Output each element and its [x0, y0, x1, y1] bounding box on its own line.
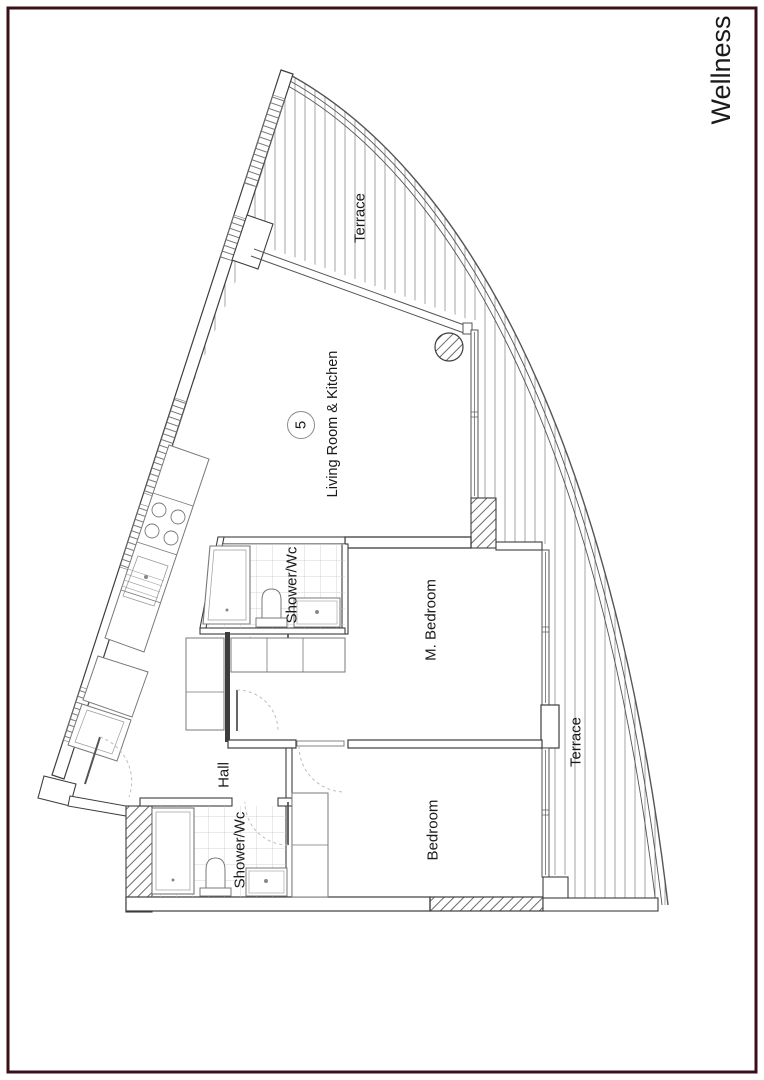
toilet-upper: [256, 618, 287, 627]
label-living-room-kitchen: Living Room & Kitchen: [325, 351, 341, 498]
label-hall: Hall: [216, 762, 233, 788]
sheet-title: Wellness: [706, 15, 736, 124]
unit-number: 5: [293, 421, 310, 429]
wardrobe-m-bedroom: [231, 638, 345, 672]
round-column: [435, 333, 463, 361]
window-bedroom: [542, 748, 549, 877]
door-leaf-bedroom: [297, 741, 344, 746]
toilet-lower: [200, 888, 231, 896]
label-shower-wc-upper: Shower/Wc: [284, 546, 301, 623]
hall-closet: [186, 638, 224, 730]
shower-wc-lower-room: [152, 802, 288, 897]
label-terrace-top: Terrace: [352, 193, 369, 243]
label-shower-wc-lower: Shower/Wc: [232, 811, 249, 888]
wall-pier-bedrooms: [541, 705, 559, 748]
wall-pier-hatched: [471, 498, 496, 548]
window-living-room: [471, 330, 478, 498]
label-bedroom: Bedroom: [425, 800, 442, 861]
label-terrace-right: Terrace: [568, 717, 585, 767]
label-m-bedroom: M. Bedroom: [423, 579, 440, 661]
floor-plan-drawing: Wellness Terrace Living Room & Kitchen 5…: [0, 0, 764, 1080]
shower-tray-upper: [203, 546, 250, 624]
window-m-bedroom: [542, 550, 549, 705]
drawing-sheet: Wellness Terrace Living Room & Kitchen 5…: [0, 0, 764, 1080]
